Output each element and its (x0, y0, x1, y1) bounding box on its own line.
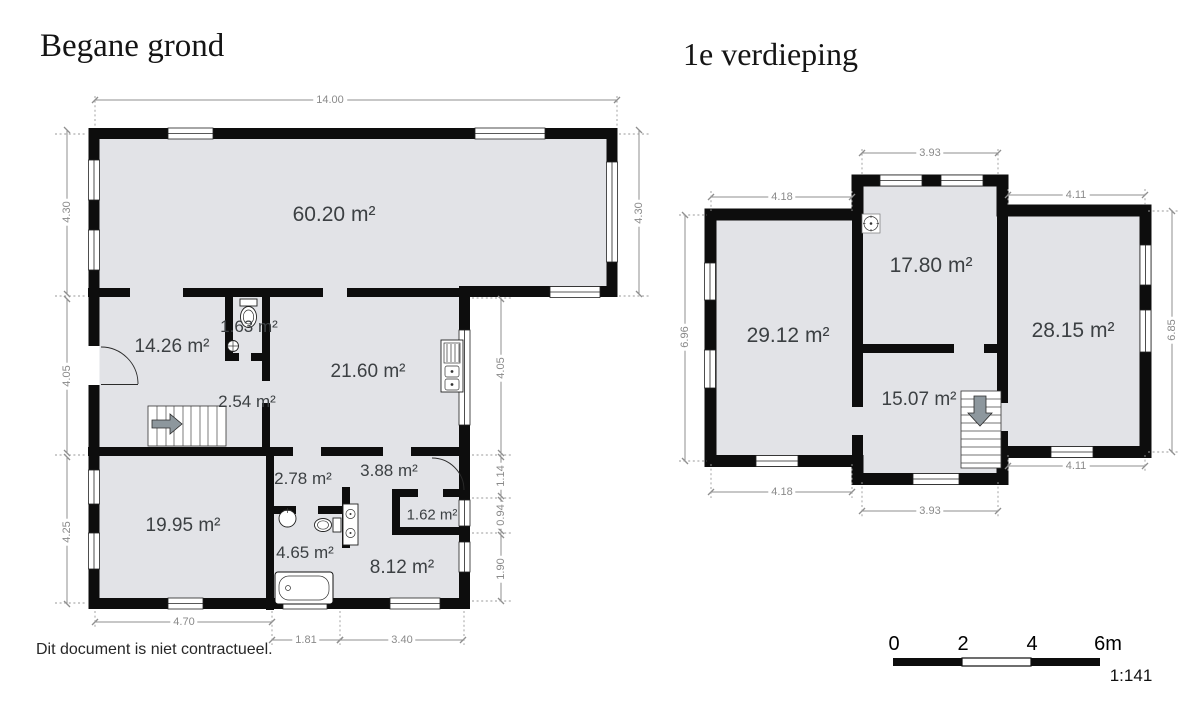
dim-inner-3: 0.94 (495, 501, 507, 528)
scale-bar (893, 658, 1100, 666)
room-area-wc: 1.63 m² (220, 317, 278, 337)
room-area-bedroom-right: 28.15 m² (1032, 319, 1115, 343)
disclaimer-text: Dit document is niet contractueel. (36, 641, 273, 659)
floorplan-page: Begane grond 1e verdieping 60.20 m² 14.2… (0, 0, 1200, 714)
room-area-kitchen: 21.60 m² (331, 361, 406, 383)
kitchen-unit-icon (441, 340, 463, 392)
dim-f-bottom-left: 4.18 (768, 486, 795, 498)
dim-f-left: 6.96 (679, 323, 691, 350)
dim-right: 4.30 (633, 199, 645, 226)
dim-bottom-left: 4.70 (170, 616, 197, 628)
dim-inner-1: 4.05 (495, 354, 507, 381)
bathtub-icon (275, 572, 333, 604)
stairs-up-icon (148, 406, 226, 446)
room-area-landing: 15.07 m² (882, 389, 957, 411)
ground-floor-title: Begane grond (40, 28, 224, 65)
room-area-hall: 14.26 m² (135, 336, 210, 358)
room-area-stair-closet: 2.54 m² (218, 392, 276, 412)
room-area-living: 60.20 m² (293, 203, 376, 227)
scale-tick-0: 0 (888, 633, 899, 656)
vanity-icon (343, 504, 358, 545)
dim-f-bottom-right: 4.11 (1063, 460, 1090, 472)
dim-bottom-mid: 1.81 (292, 634, 319, 646)
room-area-hallway: 3.88 m² (360, 461, 418, 481)
scale-tick-4: 4 (1026, 633, 1037, 656)
wc-sink-icon (228, 341, 239, 352)
dim-f-right: 6.85 (1166, 316, 1178, 343)
scale-ratio: 1:141 (1110, 666, 1153, 686)
dim-inner-2: 1.14 (495, 462, 507, 489)
dim-f-top-right: 4.11 (1063, 189, 1090, 201)
first-floor-title: 1e verdieping (683, 36, 858, 73)
scale-tick-2: 2 (957, 633, 968, 656)
room-area-bedroom-left: 29.12 m² (747, 324, 830, 348)
dim-f-top-left: 4.18 (768, 191, 795, 203)
bathroom-toilet-icon (315, 518, 342, 532)
room-area-corridor: 2.78 m² (274, 469, 332, 489)
dim-bottom-right: 3.40 (388, 634, 415, 646)
dim-top: 14.00 (313, 94, 347, 106)
dim-f-top-center: 3.93 (916, 147, 943, 159)
dim-left-top: 4.30 (61, 198, 73, 225)
dim-f-bottom-center: 3.93 (916, 505, 943, 517)
room-area-front-room: 19.95 m² (146, 515, 221, 537)
stairs-down-icon (961, 391, 1001, 468)
vent-unit-icon (862, 214, 880, 233)
dim-inner-4: 1.90 (495, 555, 507, 582)
room-area-closet: 1.62 m² (407, 507, 458, 524)
room-area-bedroom-center: 17.80 m² (890, 254, 973, 278)
room-area-back-room: 8.12 m² (370, 557, 434, 579)
scale-tick-6m: 6m (1094, 633, 1122, 656)
dim-left-mid: 4.05 (61, 362, 73, 389)
dim-left-bottom: 4.25 (61, 518, 73, 545)
room-area-bathroom: 4.65 m² (276, 543, 334, 563)
